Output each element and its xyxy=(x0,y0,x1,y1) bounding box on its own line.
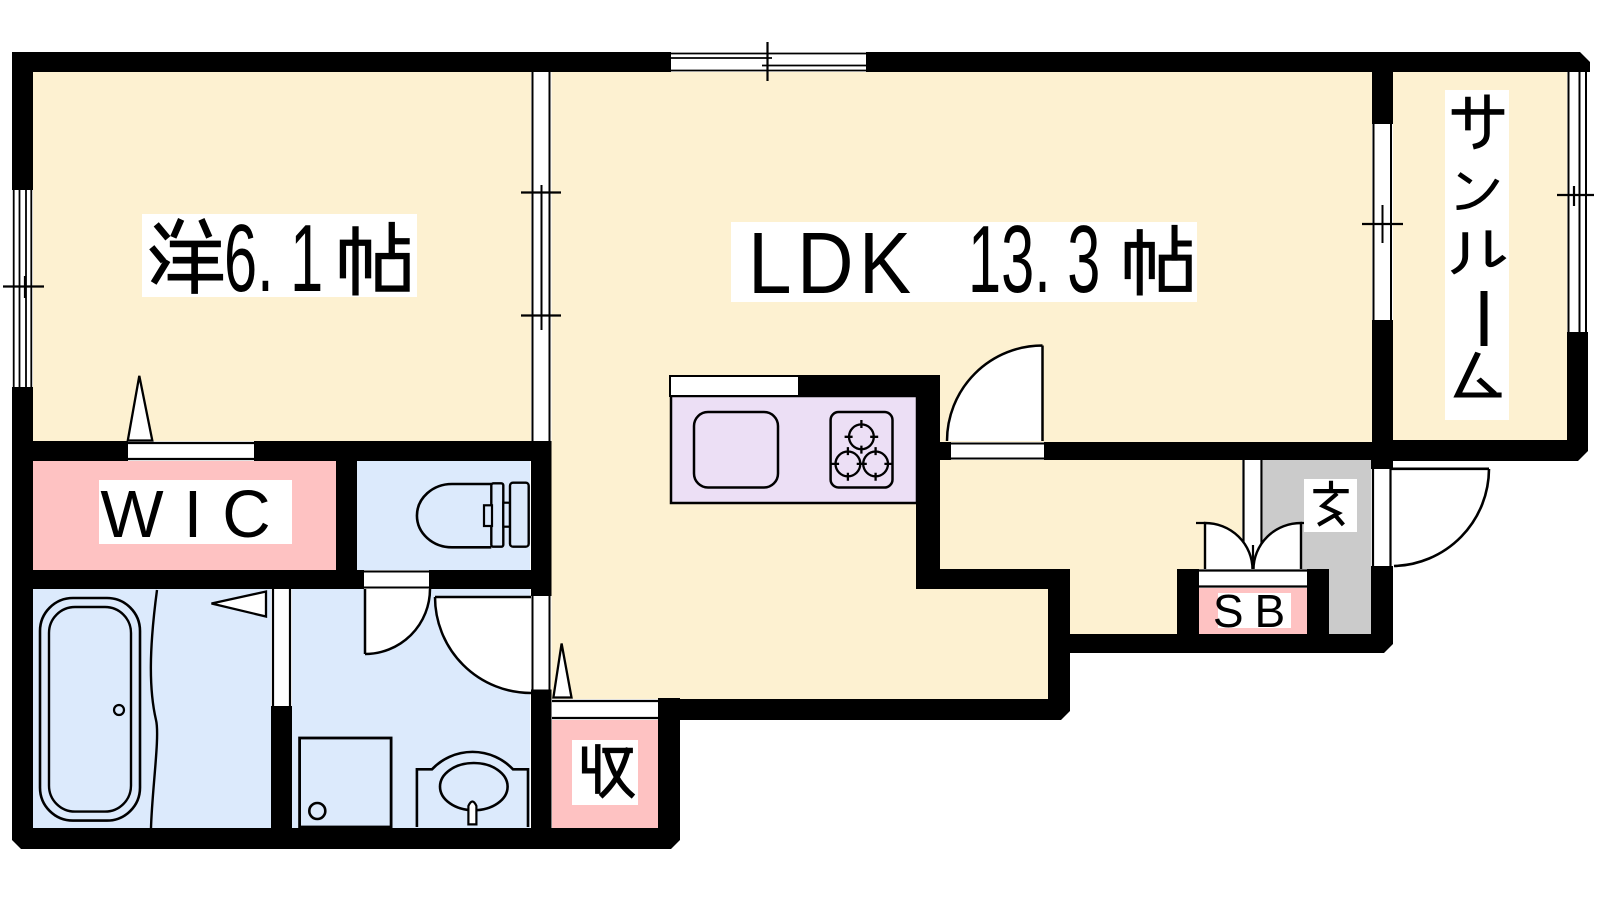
svg-text:LDK: LDK xyxy=(748,214,917,312)
svg-text:WIC: WIC xyxy=(100,477,290,552)
svg-text:6. 1: 6. 1 xyxy=(224,204,323,311)
svg-text:SB: SB xyxy=(1213,585,1296,637)
svg-text:13. 3: 13. 3 xyxy=(968,205,1100,312)
